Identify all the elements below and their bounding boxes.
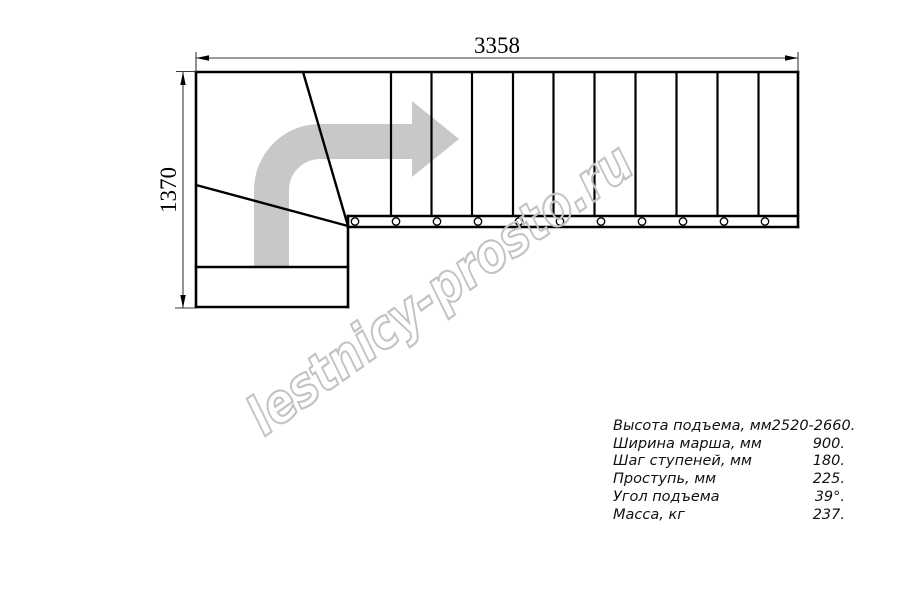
spec-label: Проступь, мм	[613, 471, 716, 489]
spec-row-rise-height: Высота подъема, мм 2520-2660.	[613, 418, 845, 436]
dimension-height-arrow-bottom	[180, 295, 185, 308]
spec-value: 225.	[813, 471, 845, 489]
spec-row-step-pitch: Шаг ступеней, мм 180.	[613, 453, 845, 471]
staircase-drawing-page: 3358 1370 lestnicy-prosto.ru Высота подъ…	[0, 0, 900, 600]
spec-row-climb-angle: Угол подъема 39°.	[613, 489, 845, 507]
watermark-text: lestnicy-prosto.ru	[235, 130, 644, 447]
spec-value: 2520-2660.	[772, 418, 856, 436]
spec-label: Шаг ступеней, мм	[613, 453, 752, 471]
dimension-height-label: 1370	[156, 167, 181, 213]
specs-table: Высота подъема, мм 2520-2660. Ширина мар…	[613, 418, 845, 524]
dimension-width: 3358	[196, 33, 798, 72]
dimension-width-arrow-right	[785, 55, 798, 60]
dimension-width-label: 3358	[474, 33, 520, 58]
spec-label: Угол подъема	[613, 489, 720, 507]
spec-value: 39°.	[815, 489, 845, 507]
dimension-width-arrow-left	[196, 55, 209, 60]
dimension-height: 1370	[156, 72, 196, 309]
spec-value: 180.	[813, 453, 845, 471]
direction-of-travel-arrow	[254, 101, 459, 267]
spec-label: Ширина марша, мм	[613, 436, 762, 454]
spec-label: Высота подъема, мм	[613, 418, 772, 436]
spec-row-flight-width: Ширина марша, мм 900.	[613, 436, 845, 454]
spec-row-tread-depth: Проступь, мм 225.	[613, 471, 845, 489]
dimension-height-arrow-top	[180, 72, 185, 85]
spec-value: 900.	[813, 436, 845, 454]
spec-label: Масса, кг	[613, 507, 685, 525]
spec-value: 237.	[813, 507, 845, 525]
spec-row-mass: Масса, кг 237.	[613, 507, 845, 525]
